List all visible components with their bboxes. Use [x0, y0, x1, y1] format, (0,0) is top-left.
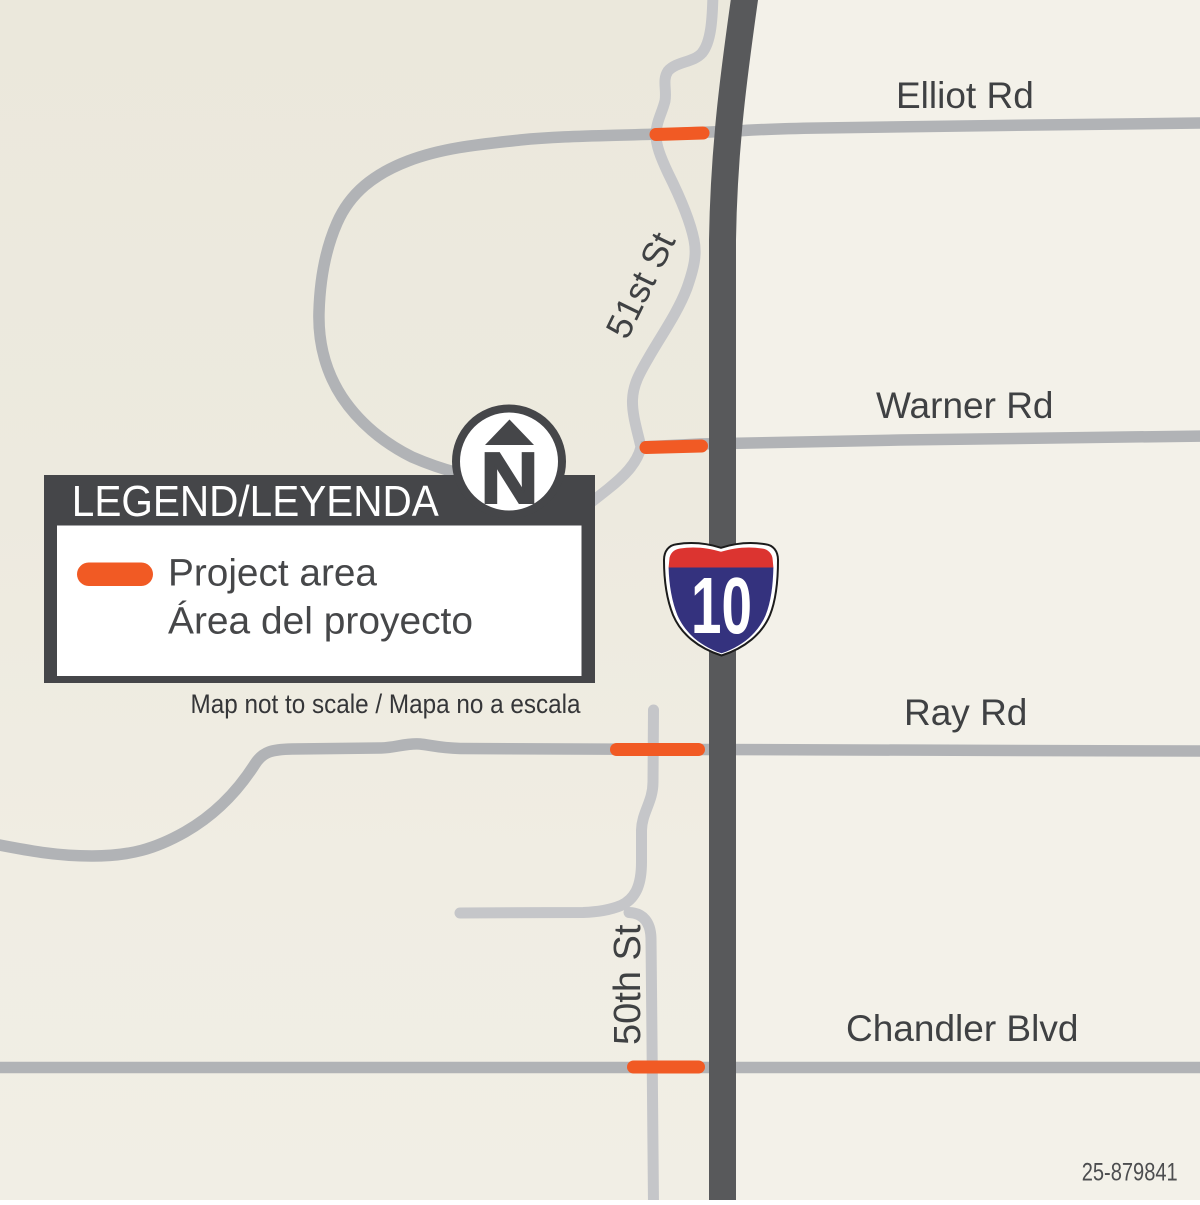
svg-text:Map not to scale / Mapa no a e: Map not to scale / Mapa no a escala: [191, 689, 582, 719]
svg-text:Elliot Rd: Elliot Rd: [896, 75, 1034, 116]
svg-text:N: N: [480, 439, 538, 519]
svg-text:Project area: Project area: [168, 553, 378, 595]
svg-text:Chandler Blvd: Chandler Blvd: [846, 1008, 1078, 1049]
svg-text:50th St: 50th St: [607, 924, 649, 1045]
svg-text:10: 10: [691, 561, 752, 651]
svg-text:25-879841: 25-879841: [1082, 1159, 1178, 1187]
svg-text:LEGEND/LEYENDA: LEGEND/LEYENDA: [72, 477, 440, 526]
svg-text:Área del proyecto: Área del proyecto: [168, 600, 473, 643]
svg-text:Ray Rd: Ray Rd: [904, 692, 1027, 733]
svg-text:Warner Rd: Warner Rd: [876, 385, 1054, 426]
